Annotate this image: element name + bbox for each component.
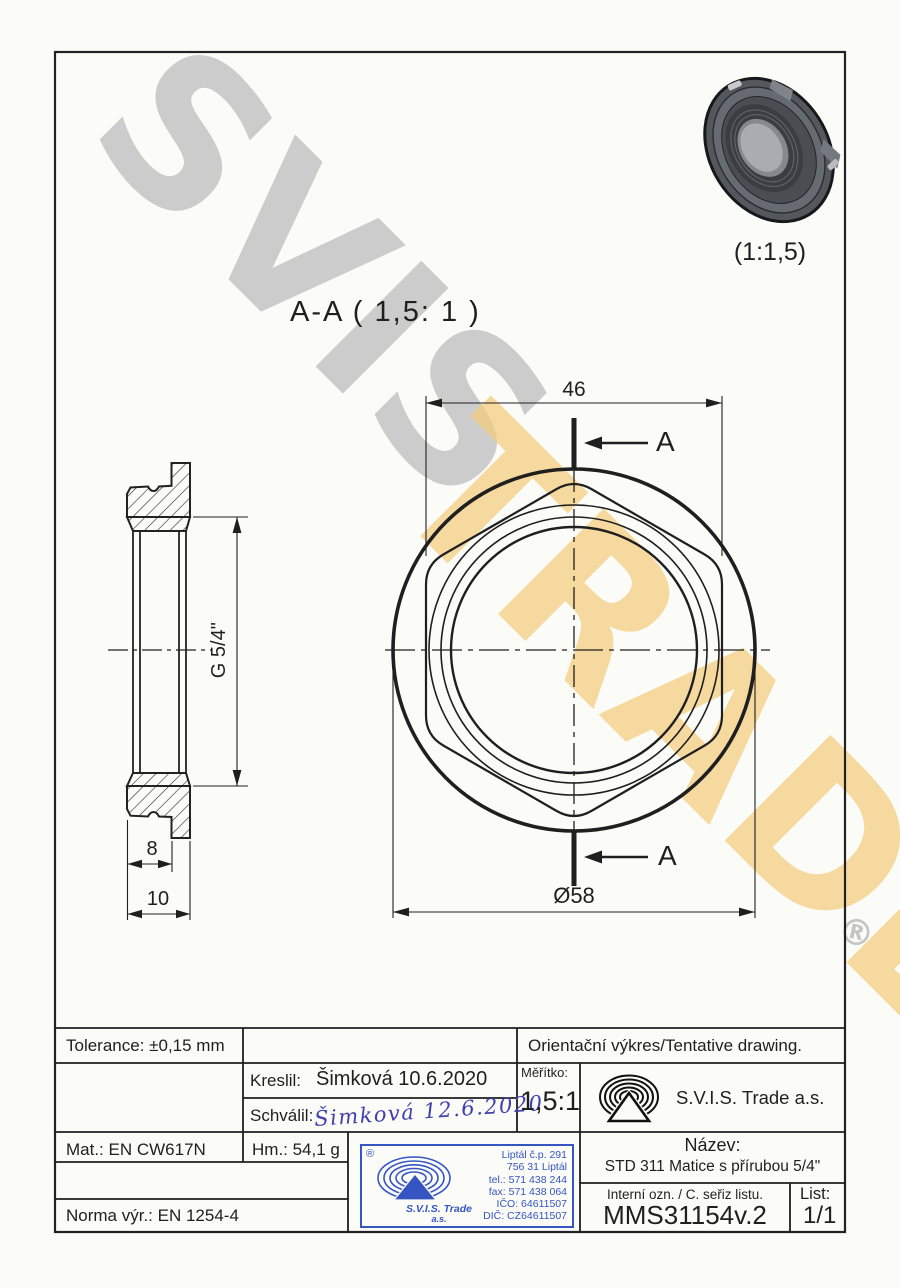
- tentative-drawing-note: Orientační výkres/Tentative drawing.: [528, 1036, 802, 1055]
- section-view-title: A-A ( 1,5: 1 ): [290, 296, 481, 328]
- weight-field: Hm.: 54,1 g: [252, 1140, 340, 1159]
- scale-label: Měřítko:: [521, 1066, 568, 1081]
- iso-view-scale-label: (1:1,5): [705, 238, 835, 266]
- company-logo: [600, 1076, 658, 1124]
- flange-section-top: [127, 463, 190, 517]
- section-arrow-bottom: [584, 851, 602, 864]
- scale-value: 1,5:1: [520, 1086, 580, 1116]
- approved-by-label: Schválil:: [250, 1106, 313, 1125]
- tolerance-field: Tolerance: ±0,15 mm: [66, 1036, 225, 1055]
- side-section-view: [108, 463, 212, 838]
- dim-total-width: 10: [138, 888, 178, 910]
- production-standard-field: Norma výr.: EN 1254-4: [66, 1206, 239, 1225]
- sheet-value: 1/1: [803, 1203, 836, 1230]
- dim-across-flats: 46: [554, 378, 594, 402]
- stamp-vat-id: DIČ: CZ64611507: [483, 1210, 567, 1222]
- stamp-company-id: IČO: 64611507: [483, 1198, 567, 1210]
- front-view: [385, 418, 770, 886]
- stamp-registered-icon: ®: [366, 1148, 374, 1160]
- stamp-address: Liptál č.p. 291 756 31 Liptál tel.: 571 …: [483, 1149, 567, 1223]
- section-marker-a-bottom: A: [658, 840, 677, 871]
- dim-outer-diameter: Ø58: [534, 884, 614, 909]
- part-title-label: Název:: [580, 1135, 845, 1155]
- section-arrow-top: [584, 437, 602, 450]
- part-title-value: STD 311 Matice s přírubou 5/4": [580, 1158, 845, 1175]
- drawn-by-label: Kreslil:: [250, 1071, 301, 1090]
- stamp-fax: fax: 571 438 064: [483, 1186, 567, 1198]
- stamp-address-line1: Liptál č.p. 291: [483, 1149, 567, 1161]
- stamp-company-suffix: a.s.: [384, 1214, 494, 1224]
- company-stamp: ® Liptál č.p. 291 756 31 Liptál tel.: 57…: [360, 1144, 574, 1228]
- company-name: S.V.I.S. Trade a.s.: [676, 1088, 824, 1109]
- section-marker-a-top: A: [656, 426, 675, 457]
- flange-section-bottom: [127, 786, 190, 838]
- stamp-phone: tel.: 571 438 244: [483, 1174, 567, 1186]
- material-field: Mat.: EN CW617N: [66, 1140, 206, 1159]
- dim-thread-size: G 5/4": [208, 595, 230, 705]
- dim-collar-width: 8: [132, 838, 172, 860]
- drawn-by-value: Šimková 10.6.2020: [316, 1068, 487, 1090]
- internal-code-value: MMS31154v.2: [582, 1201, 788, 1230]
- drawing-sheet: SVIS TRADE ®: [0, 0, 900, 1288]
- stamp-address-line2: 756 31 Liptál: [483, 1161, 567, 1173]
- iso-view-nut: [678, 53, 859, 245]
- sheet-label: List:: [800, 1185, 830, 1203]
